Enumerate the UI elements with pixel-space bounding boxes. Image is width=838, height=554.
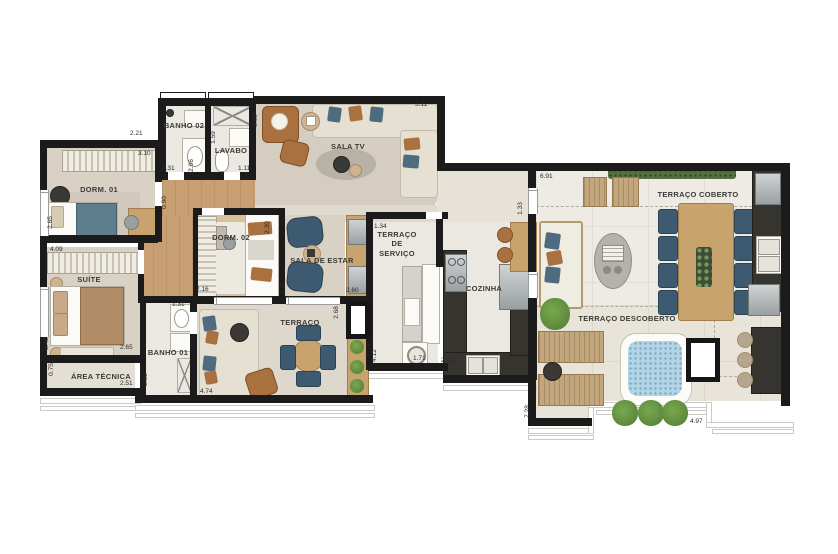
pillow: [202, 315, 217, 332]
dimension: 4.09: [50, 246, 63, 253]
tree: [540, 298, 570, 330]
jacuzzi-water: [628, 341, 682, 396]
pillow: [202, 355, 216, 371]
dining-chair: [658, 263, 678, 288]
dimension: 1.11: [238, 165, 250, 172]
room-label-banho02: BANHO 02: [164, 121, 204, 130]
blanket: [248, 240, 274, 260]
built-in-grill: [755, 173, 781, 205]
dimension: 1.59: [210, 131, 217, 144]
pillow: [53, 313, 68, 336]
structural-column: [686, 338, 720, 382]
armchair: [286, 260, 325, 294]
door-opening: [224, 172, 240, 180]
parapet: [40, 398, 141, 404]
wall: [368, 363, 448, 371]
burner: [457, 276, 465, 284]
parapet: [528, 428, 594, 434]
parapet: [40, 406, 141, 411]
wall: [528, 418, 592, 426]
pillow: [369, 106, 383, 122]
door-opening: [202, 208, 224, 215]
dimension: 1.34: [374, 223, 387, 230]
dimension: 3.09: [252, 114, 259, 127]
toilet: [229, 128, 250, 147]
dimension: 2.68: [333, 306, 340, 319]
bar-stool: [737, 352, 753, 368]
burner: [457, 258, 465, 266]
pillow: [546, 250, 563, 266]
parapet: [443, 385, 537, 391]
wall: [135, 395, 373, 403]
window: [40, 190, 49, 236]
pillow: [348, 105, 363, 122]
bush: [612, 400, 638, 426]
dimension: 1.31: [172, 301, 185, 308]
pillow: [53, 291, 68, 314]
door-opening: [168, 172, 184, 180]
dimension: 0.90: [161, 196, 168, 209]
room-label-cozinha: COZINHA: [466, 284, 502, 293]
dimension: 0.75: [48, 363, 55, 376]
bush: [638, 400, 664, 426]
dimension: 1.71: [413, 355, 426, 362]
room-label-terraco-descoberto: TERRAÇO DESCOBERTO: [578, 314, 675, 323]
shower-head: [166, 109, 174, 117]
dishwasher: [748, 284, 780, 316]
bar-stool: [497, 227, 513, 243]
dining-chair: [658, 209, 678, 234]
room-label-terraco-coberto: TERRAÇO COBERTO: [657, 190, 738, 199]
pillow: [544, 232, 561, 250]
dining-chair: [734, 236, 754, 261]
pillow: [327, 106, 342, 123]
parapet: [135, 413, 375, 418]
sink: [174, 309, 189, 328]
wall: [436, 219, 443, 267]
pillow: [403, 137, 420, 151]
pillow: [250, 267, 272, 282]
coffee-table-small: [349, 164, 362, 177]
burner-knob: [603, 266, 611, 274]
dimension: 1.33: [517, 202, 524, 215]
dimension: 2.16: [196, 286, 209, 293]
bar-counter: [751, 327, 783, 394]
wall: [443, 375, 535, 383]
dimension: 2.21: [130, 130, 143, 137]
window: [40, 287, 49, 337]
dimension: 2.06: [188, 159, 195, 172]
wall: [140, 296, 194, 303]
sink-basin: [758, 256, 780, 272]
dimension: 2.52: [142, 373, 149, 386]
sliding-door: [214, 297, 272, 305]
desk-chair: [124, 215, 139, 230]
room-label-banho01: BANHO 01: [148, 348, 188, 357]
dimension: 3.42: [43, 337, 50, 350]
bush: [662, 400, 688, 426]
structural-column: [346, 301, 370, 339]
door-opening: [426, 212, 442, 219]
room-label-sala-estar: SALA DE ESTAR: [290, 256, 354, 265]
shower-box: [213, 106, 252, 126]
sliding-door: [286, 297, 340, 305]
wall: [40, 388, 140, 396]
throw-blanket: [271, 113, 288, 130]
pillow: [205, 330, 219, 345]
room-label-lavabo: LAVABO: [215, 146, 247, 155]
wall: [366, 212, 373, 370]
sliding-door: [528, 272, 538, 298]
parapet: [706, 422, 794, 428]
grill: [602, 245, 624, 262]
room-label-terraco: TERRAÇO: [280, 318, 319, 327]
dimension: 5.11: [415, 101, 427, 108]
parapet: [712, 429, 794, 434]
lounge-chair: [583, 177, 607, 207]
dimension: 2.51: [120, 380, 133, 387]
bar-stool: [497, 247, 513, 263]
parapet: [368, 373, 446, 379]
dining-chair: [658, 236, 678, 261]
tray: [306, 116, 316, 126]
plant: [350, 360, 364, 374]
coverage-dashed-line: [536, 206, 782, 207]
dining-corridor-floor: [437, 170, 529, 223]
wall: [40, 235, 158, 243]
floor-plan: DORM. 01 SUÍTE BANHO 02 LAVABO SALA TV D…: [0, 0, 838, 554]
wall: [40, 140, 162, 148]
dimension: 4.97: [690, 418, 703, 425]
bar-stool: [737, 372, 753, 388]
dimension: 2.45: [441, 357, 454, 364]
dimension: 4.74: [200, 388, 213, 395]
pillow: [544, 266, 561, 283]
wall: [443, 163, 790, 171]
dining-chair: [734, 209, 754, 234]
room-label-suite: SUÍTE: [77, 275, 101, 284]
dimension: 7.28: [524, 405, 531, 418]
burner: [448, 258, 456, 266]
room-label-dorm02: DORM. 02: [212, 233, 250, 242]
parapet: [135, 405, 375, 411]
pillow: [204, 370, 218, 385]
sliding-door: [528, 188, 538, 214]
dimension: 2.65: [47, 216, 54, 229]
bar-stool: [737, 332, 753, 348]
table-centerpiece-planter: [696, 247, 712, 287]
dining-chair: [658, 290, 678, 315]
sink-basin: [758, 239, 780, 255]
burner-knob: [614, 266, 622, 274]
dimension: 2.65: [120, 344, 133, 351]
dining-chair: [296, 371, 321, 387]
oven-microwave: [348, 219, 367, 245]
door-op­ening: [190, 312, 197, 334]
sink-basin: [468, 357, 483, 374]
dimension: 6.91: [540, 173, 553, 180]
laundry-sink: [404, 298, 420, 326]
wall: [781, 163, 790, 406]
side-table: [230, 323, 249, 342]
blanket: [76, 203, 117, 239]
room-label-sala-tv: SALA TV: [331, 142, 365, 151]
plant: [350, 379, 364, 393]
sun-lounger: [538, 331, 604, 363]
plant: [350, 340, 364, 354]
side-table: [543, 362, 562, 381]
dining-chair: [320, 345, 336, 370]
armchair: [286, 215, 325, 249]
room-label-terraco-servico: TERRAÇO DE SERVIÇO: [373, 230, 421, 258]
lounge-chair: [612, 177, 639, 207]
dining-chair: [296, 325, 321, 341]
wall: [437, 96, 445, 171]
pillow: [402, 154, 419, 168]
dimension: 4.12: [371, 349, 378, 362]
dimension: 2.60: [346, 287, 359, 294]
dimension: 3.10: [138, 150, 151, 157]
dimension: 2.30: [264, 221, 271, 234]
sink-basin: [483, 357, 498, 374]
dimension: 5.02: [280, 281, 287, 294]
wall: [40, 355, 141, 363]
room-label-dorm01: DORM. 01: [80, 185, 118, 194]
dimension: 1.31: [162, 165, 175, 172]
coffee-table: [333, 156, 350, 173]
tall-cabinet: [422, 264, 440, 344]
door-opening: [138, 250, 144, 274]
burner: [448, 276, 456, 284]
wardrobe: [47, 252, 141, 274]
blanket: [80, 287, 124, 345]
parapet: [528, 435, 594, 440]
dining-chair: [280, 345, 296, 370]
